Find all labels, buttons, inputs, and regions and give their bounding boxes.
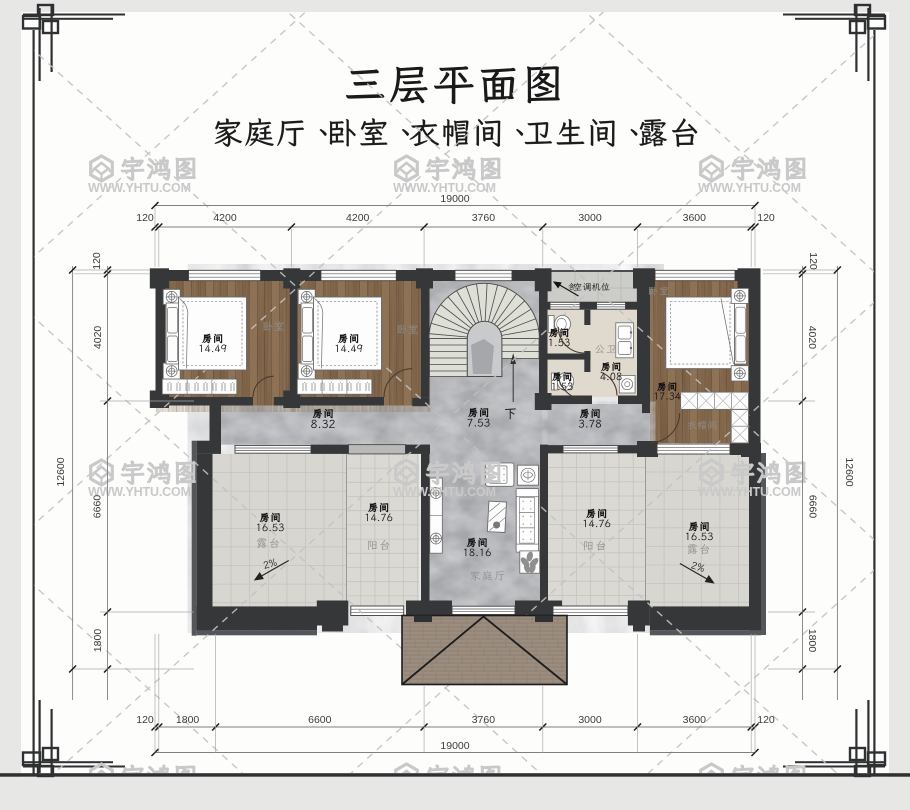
svg-text:3600: 3600 <box>683 212 707 224</box>
svg-text:120: 120 <box>757 212 775 224</box>
svg-text:120: 120 <box>136 212 154 224</box>
svg-text:19000: 19000 <box>440 193 469 205</box>
svg-text:1800: 1800 <box>92 629 104 653</box>
svg-text:1800: 1800 <box>806 629 818 653</box>
svg-text:3760: 3760 <box>472 714 496 726</box>
svg-text:120: 120 <box>136 714 154 726</box>
svg-text:3760: 3760 <box>472 212 496 224</box>
svg-text:4020: 4020 <box>806 326 818 350</box>
svg-text:4200: 4200 <box>346 212 370 224</box>
svg-text:WWW.YHTU.COM: WWW.YHTU.COM <box>698 485 801 499</box>
svg-text:120: 120 <box>757 714 775 726</box>
svg-text:12600: 12600 <box>843 457 855 486</box>
svg-text:3000: 3000 <box>578 212 602 224</box>
svg-text:19000: 19000 <box>440 740 469 752</box>
svg-text:12600: 12600 <box>55 457 67 486</box>
svg-text:WWW.YHTU.COM: WWW.YHTU.COM <box>88 181 191 195</box>
svg-text:4020: 4020 <box>92 326 104 350</box>
svg-text:6660: 6660 <box>807 495 819 519</box>
svg-text:4200: 4200 <box>213 212 237 224</box>
svg-text:WWW.YHTU.COM: WWW.YHTU.COM <box>698 181 801 195</box>
svg-text:6600: 6600 <box>308 714 332 726</box>
svg-text:WWW.YHTU.COM: WWW.YHTU.COM <box>393 485 496 499</box>
svg-text:3000: 3000 <box>578 714 602 726</box>
svg-text:120: 120 <box>807 252 819 270</box>
svg-text:1800: 1800 <box>176 714 200 726</box>
svg-text:120: 120 <box>91 252 103 270</box>
svg-text:6660: 6660 <box>92 495 104 519</box>
svg-text:3600: 3600 <box>683 714 707 726</box>
